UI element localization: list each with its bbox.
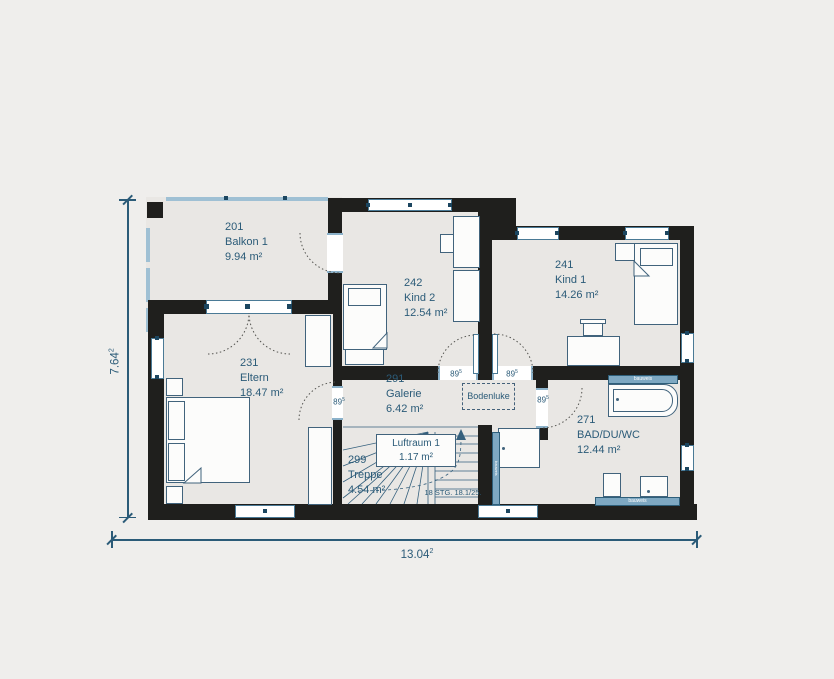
blanket-fold [184, 468, 201, 483]
door-arc-double-left [208, 313, 249, 354]
door-arc-double-right [249, 313, 290, 354]
floor-plan: bauweis bauweis bauweis 201 Balkon 1 9.9… [0, 0, 834, 679]
door-width-label: 895 [324, 396, 354, 407]
room-area: 12.54 m² [404, 306, 447, 321]
room-name: Treppe [348, 468, 385, 483]
room-label-bad: 271 BAD/DU/WC 12.44 m² [577, 413, 640, 458]
room-label-eltern: 231 Eltern 18.47 m² [240, 356, 283, 401]
stair-note: 18 STG. 18.1/25. [418, 488, 488, 497]
room-area: 6.42 m² [386, 402, 423, 417]
door-width-label: 895 [497, 368, 527, 379]
bathtub-label-band: bauweis [608, 375, 678, 384]
room-number: 201 [225, 220, 268, 235]
dimension-line-height [127, 200, 129, 518]
room-area: 18.47 m² [240, 386, 283, 401]
dimension-height-label: 7.642 [105, 339, 124, 383]
blanket-fold [634, 261, 649, 276]
room-name: BAD/DU/WC [577, 428, 640, 443]
plan-linework [0, 0, 834, 679]
room-area: 9.94 m² [225, 250, 268, 265]
room-area: 14.26 m² [555, 288, 598, 303]
room-name: Eltern [240, 371, 283, 386]
vanity-label-band: bauweis [595, 497, 680, 506]
door-width-label: 895 [441, 368, 471, 379]
fixture-label-text: bauweis [634, 376, 652, 382]
stair-up-arrow [456, 429, 466, 440]
room-area: 12.44 m² [577, 443, 640, 458]
room-name: Kind 1 [555, 273, 598, 288]
room-number: 231 [240, 356, 283, 371]
room-label-galerie: 291 Galerie 6.42 m² [386, 372, 423, 417]
room-number: 291 [386, 372, 423, 387]
room-name: Galerie [386, 387, 423, 402]
blanket-fold [373, 333, 387, 348]
luftraum-box: Luftraum 1 1.17 m² [376, 434, 456, 467]
fixture-label-text: bauweis [494, 461, 499, 476]
door-arc-balcony [300, 233, 340, 273]
room-label-balkon: 201 Balkon 1 9.94 m² [225, 220, 268, 265]
room-name: Balkon 1 [225, 235, 268, 250]
door-width-label: 895 [528, 394, 558, 405]
room-label-kind1: 241 Kind 1 14.26 m² [555, 258, 598, 303]
room-label-kind2: 242 Kind 2 12.54 m² [404, 276, 447, 321]
room-area: 1.17 m² [377, 451, 455, 465]
dimension-width-label: 13.042 [372, 544, 462, 563]
room-name: Kind 2 [404, 291, 447, 306]
bodenluke-box: Bodenluke [462, 383, 515, 410]
room-number: 241 [555, 258, 598, 273]
fixture-label-text: bauweis [628, 498, 646, 504]
room-number: 271 [577, 413, 640, 428]
room-name: Luftraum 1 [377, 437, 455, 451]
bodenluke-label: Bodenluke [467, 391, 510, 401]
room-number: 242 [404, 276, 447, 291]
room-area: 4.54 m² [348, 483, 385, 498]
shower-partition: bauweis [492, 432, 500, 505]
dimension-line-width [112, 539, 698, 541]
